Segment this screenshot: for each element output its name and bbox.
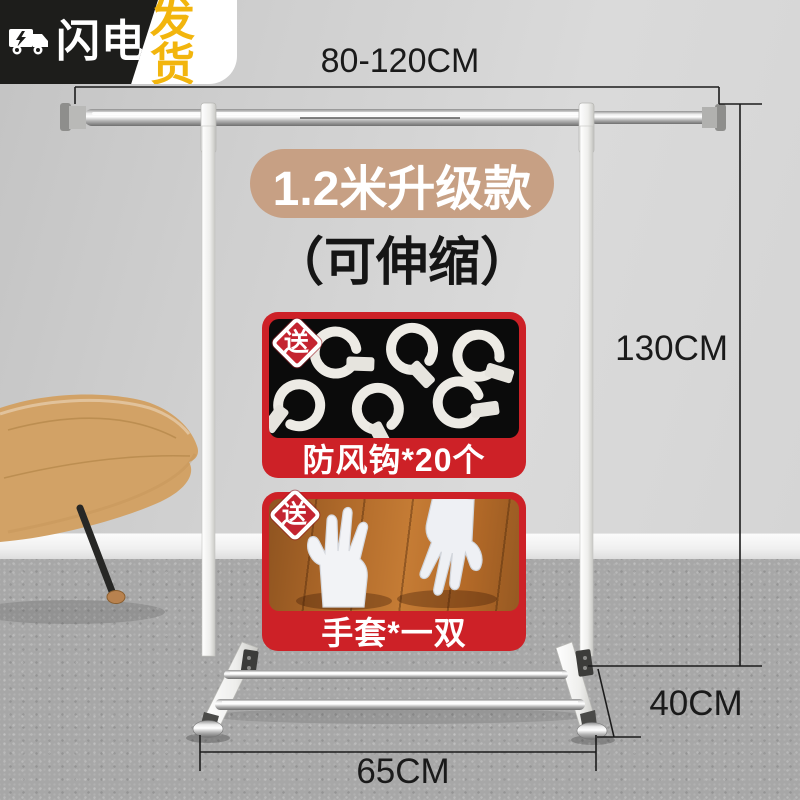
brand-text-left: 闪电 [56,20,146,64]
glove-icon [308,507,368,607]
gift-badge-text: 送 [284,330,309,355]
feature-label: （可伸缩） [227,220,577,295]
dim-label-depth: 40CM [646,686,746,721]
hook-icon [269,381,322,438]
gift-panel-hooks: 送 防风钩*20个 [262,312,526,478]
depth-dim-line [598,669,614,737]
dim-label-rail-width: 80-120CM [300,44,500,78]
hook-icon [383,323,448,391]
gift-caption-hooks: 防风钩*20个 [269,438,519,478]
product-image: 闪电 发货 80-120CM 130CM 40CM 65CM 1.2米升级款 （… [0,0,800,800]
hook-icon [307,319,381,394]
dim-label-base-width: 65CM [303,754,503,789]
glove-icon [418,499,490,600]
lightning-truck-icon [7,23,51,61]
brand-text-right: 发货 [150,0,237,84]
model-pill: 1.2米升级款 [250,149,554,218]
dim-label-height: 130CM [598,331,728,366]
gift-caption-gloves: 手套*一双 [269,611,519,651]
shipping-badge-left: 闪电 [0,0,158,84]
gift-panel-gloves: 送 手套*一双 [262,492,526,651]
shipping-badge: 闪电 发货 [0,0,237,84]
gift-badge-text: 送 [282,502,307,527]
hook-icon [342,380,416,438]
